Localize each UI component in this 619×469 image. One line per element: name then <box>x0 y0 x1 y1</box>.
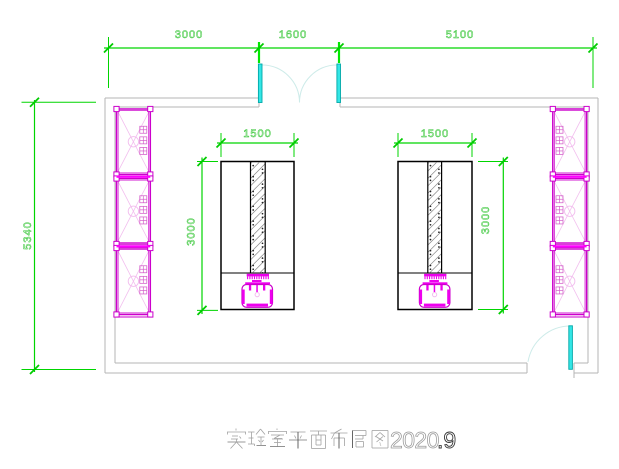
svg-text:3000: 3000 <box>186 217 198 245</box>
svg-text:1600: 1600 <box>279 29 307 41</box>
svg-text:3000: 3000 <box>175 29 203 41</box>
svg-text:3000: 3000 <box>480 206 492 234</box>
svg-text:1500: 1500 <box>421 128 449 140</box>
svg-text:.9: .9 <box>437 427 456 453</box>
svg-text:2020: 2020 <box>390 427 439 453</box>
svg-text:5100: 5100 <box>446 29 474 41</box>
svg-text:1500: 1500 <box>243 128 271 140</box>
svg-text:5340: 5340 <box>22 221 34 249</box>
